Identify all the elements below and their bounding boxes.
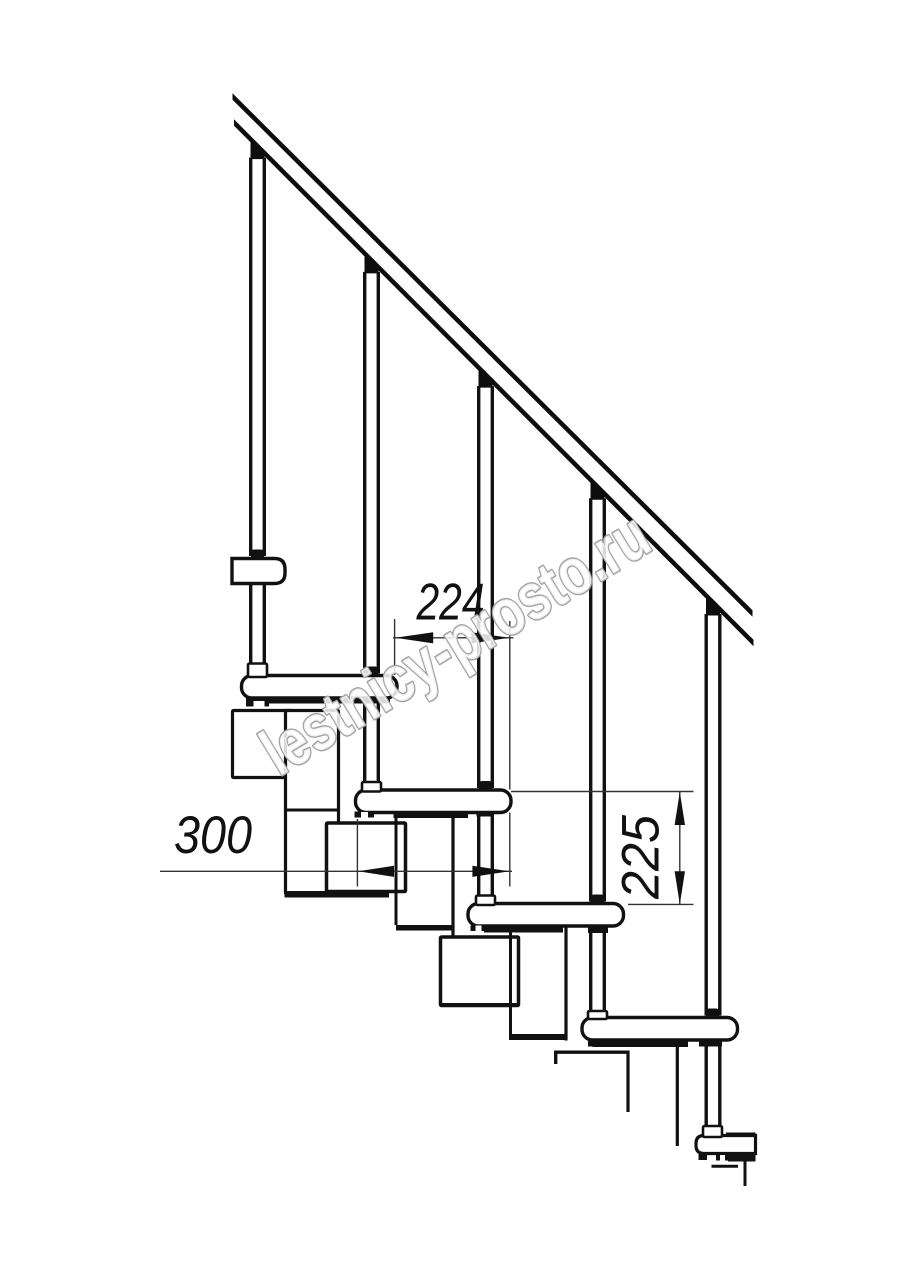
svg-text:225: 225 — [612, 815, 671, 900]
svg-text:300: 300 — [174, 806, 252, 865]
